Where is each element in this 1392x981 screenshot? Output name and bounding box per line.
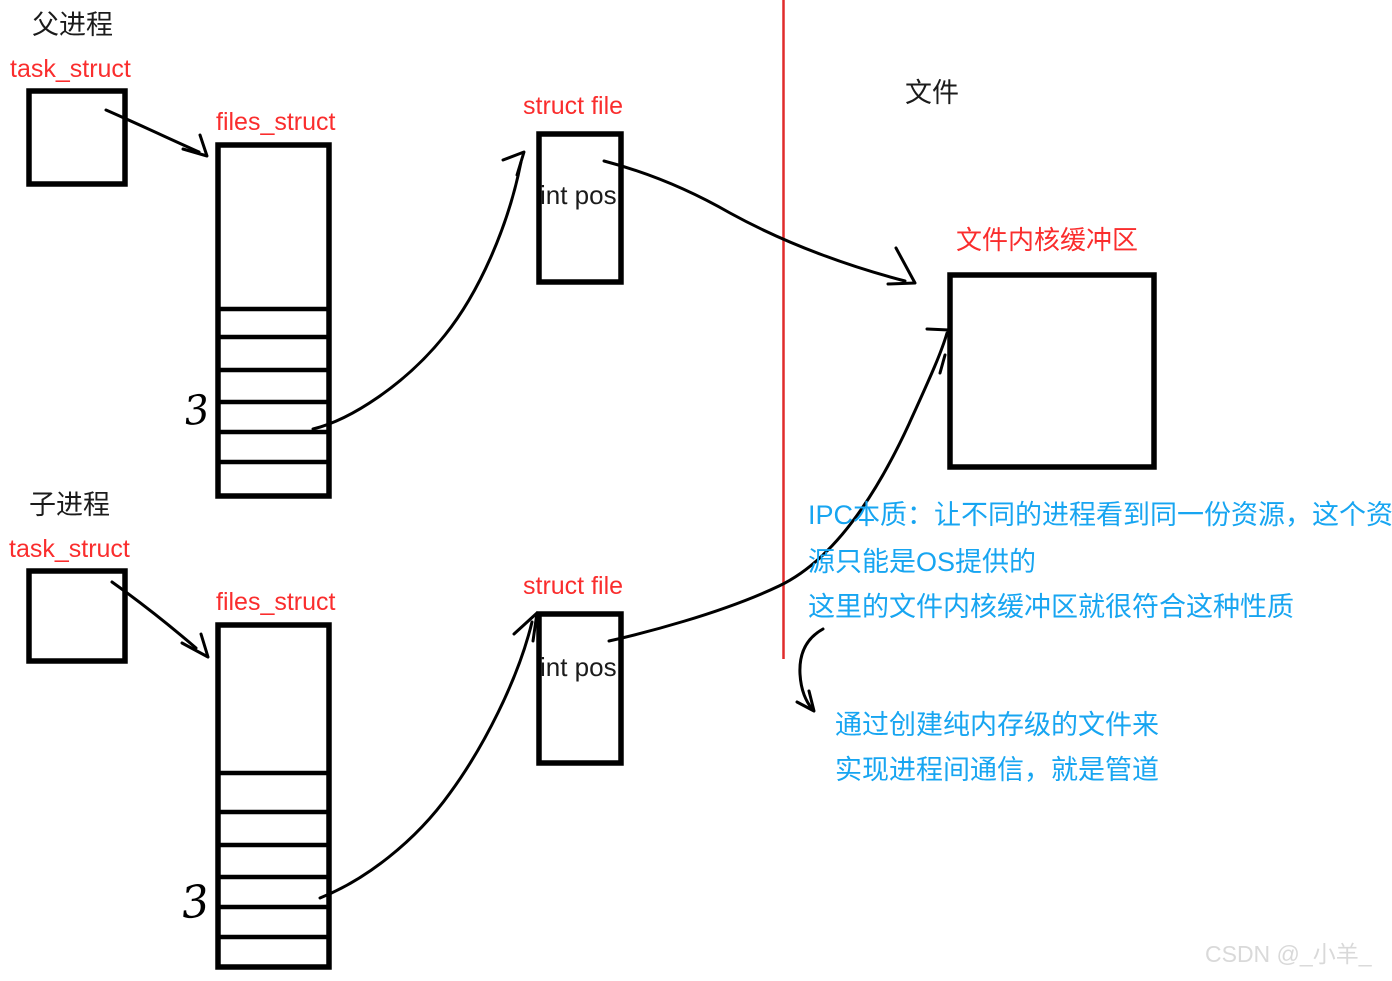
diagram-canvas: 3 3 父进程 task_struct files_struct struct … <box>0 0 1392 981</box>
parent-int-pos-field: int pos <box>540 181 617 210</box>
parent-fd-index-number: 3 <box>182 387 212 435</box>
child-fd-table-rows <box>218 773 329 937</box>
ipc-note-line-3: 这里的文件内核缓冲区就很符合这种性质 <box>808 593 1294 623</box>
child-fd-index-number: 3 <box>179 876 212 930</box>
arrow-note-to-pipe-note <box>797 629 823 711</box>
arrow-parent-task-to-files <box>106 110 207 156</box>
parent-process-title: 父进程 <box>32 11 113 41</box>
pipe-note-line-2: 实现进程间通信，就是管道 <box>835 756 1159 786</box>
child-struct-file-label: struct file <box>523 573 623 601</box>
child-task-struct-label: task_struct <box>9 536 130 564</box>
parent-fd-table-rows <box>218 309 329 462</box>
file-side-title: 文件 <box>905 79 959 109</box>
diagram-strokes: 3 3 <box>0 0 1392 981</box>
parent-task-struct-box <box>29 91 125 184</box>
parent-files-struct-box <box>218 145 329 496</box>
child-struct-file-box <box>539 614 621 763</box>
parent-struct-file-label: struct file <box>523 93 623 121</box>
arrow-parent-fd3-to-struct-file <box>313 152 524 429</box>
parent-files-struct-label: files_struct <box>216 109 335 137</box>
child-task-struct-box <box>29 571 125 661</box>
child-process-title: 子进程 <box>29 491 110 521</box>
arrow-parent-struct-file-to-buffer <box>604 161 915 284</box>
kernel-buffer-label: 文件内核缓冲区 <box>956 226 1138 255</box>
parent-task-struct-label: task_struct <box>10 56 131 84</box>
child-files-struct-box <box>218 625 329 967</box>
child-int-pos-field: int pos <box>540 653 617 682</box>
child-files-struct-label: files_struct <box>216 589 335 617</box>
pipe-note-line-1: 通过创建纯内存级的文件来 <box>835 711 1159 741</box>
arrow-child-fd3-to-struct-file <box>320 613 537 898</box>
ipc-note-line-1: IPC本质：让不同的进程看到同一份资源，这个资 <box>808 501 1392 531</box>
csdn-watermark: CSDN @_小羊_ <box>1205 942 1372 967</box>
ipc-note-line-2: 源只能是OS提供的 <box>808 548 1036 578</box>
kernel-buffer-box <box>950 275 1154 467</box>
